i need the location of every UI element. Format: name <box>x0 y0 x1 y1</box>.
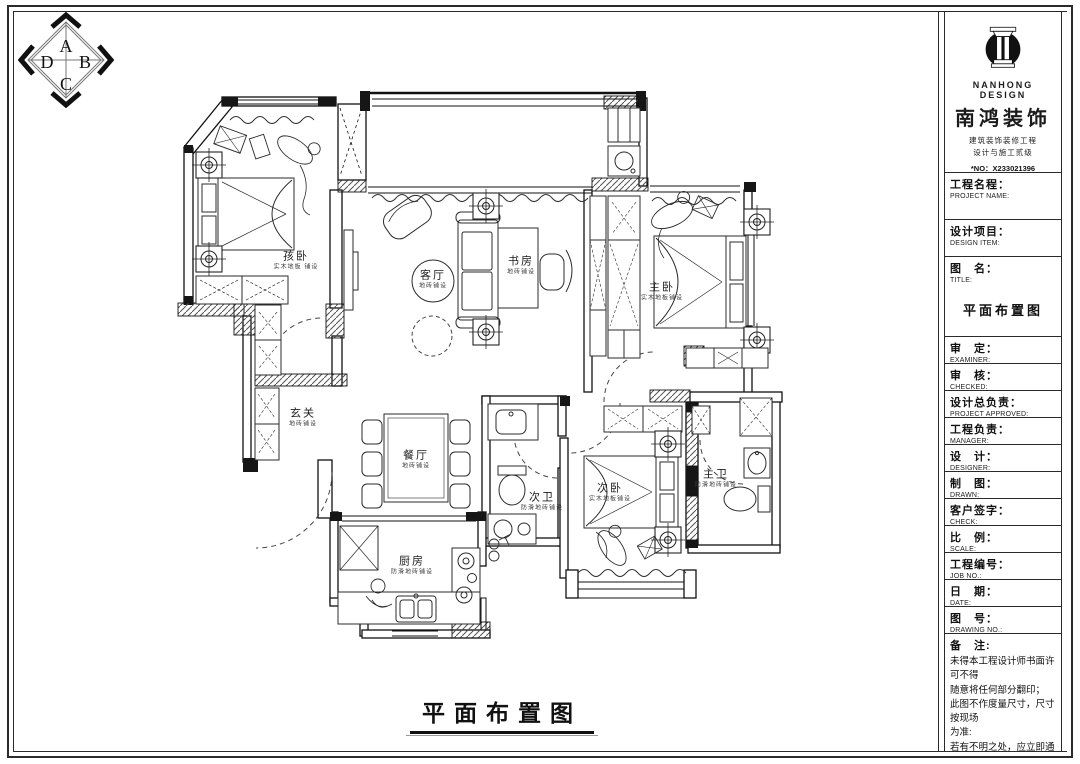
bedside-lamp <box>651 523 685 557</box>
field-drawing-no: 图 号： DRAWING NO.: <box>945 607 1061 634</box>
title-underline-thin <box>406 735 598 736</box>
field-project-approved: 设计总负责： PROJECT APPROVED: <box>945 391 1061 418</box>
field-project-name: 工程名程： PROJECT NAME: <box>945 173 1061 220</box>
field-client-signature: 客户签字： CHECK: <box>945 499 1061 526</box>
wardrobe-bedroom2 <box>604 406 682 432</box>
field-designer: 设 计： DESIGNER: <box>945 445 1061 472</box>
bed-child-bedroom <box>198 178 294 250</box>
field-title: 图 名： TITLE: 平面布置图 <box>945 257 1061 337</box>
remarks-text: 未得本工程设计师书面许可不得 随意将任何部分翻印； 此图不作度量尺寸，尺寸按现场… <box>950 655 1056 751</box>
field-checked: 审 核： CHECKED: <box>945 364 1061 391</box>
bedside-lamp <box>651 427 685 461</box>
field-date: 日 期： DATE: <box>945 580 1061 607</box>
drawing-title-text: 平面布置图 <box>402 694 602 728</box>
tv-console <box>344 230 358 310</box>
dresser-master <box>686 348 768 368</box>
drawing-title: 平面布置图 <box>402 694 602 736</box>
field-examiner: 审 定： EXAMINER: <box>945 337 1061 364</box>
field-manager: 工程负责： MANAGER: <box>945 418 1061 445</box>
cert-line-1: 建筑装饰装修工程 <box>950 135 1056 146</box>
compass-letter-d: D <box>41 52 54 72</box>
clutter-bedroom2 <box>592 521 662 570</box>
bookshelf-study <box>590 196 606 356</box>
title-underline-thick <box>410 731 594 734</box>
brand-name-cn: 南鸿装饰 <box>950 102 1056 131</box>
room-label-master-bedroom: 主卧实木地板铺设 <box>641 282 683 303</box>
orientation-compass: A B C D <box>18 12 114 108</box>
field-drawn: 制 图： DRAWN: <box>945 472 1061 499</box>
cert-line-2: 设计与施工贰级 <box>950 147 1056 158</box>
column-symbol <box>469 315 503 349</box>
room-label-dining: 餐厅地砖铺设 <box>402 450 430 471</box>
kitchen-sink <box>396 594 436 622</box>
vanity-bath2 <box>488 404 538 440</box>
sofa <box>456 212 500 328</box>
field-job-no: 工程编号： JOB NO.: <box>945 553 1061 580</box>
remarks-block: 备 注: 未得本工程设计师书面许可不得 随意将任何部分翻印； 此图不作度量尺寸，… <box>945 634 1061 751</box>
compass-letter-a: A <box>60 36 73 56</box>
room-label-kitchen: 厨房防滑地砖铺设 <box>391 556 433 577</box>
license-number: *NO：X233021396 <box>950 163 1056 173</box>
room-label-study: 书房地砖铺设 <box>507 256 535 277</box>
room-label-bedroom2: 次卧实木地板铺设 <box>589 483 631 504</box>
compass-letter-c: C <box>60 74 72 94</box>
chair-study <box>540 250 572 292</box>
room-label-master-bath: 主卫防滑地砖铺设 <box>695 469 737 490</box>
field-design-item: 设计项目： DESIGN ITEM: <box>945 220 1061 257</box>
armchair <box>379 191 436 243</box>
brand-name-en: NANHONG DESIGN <box>950 80 1056 100</box>
sink-master-bath <box>744 448 770 478</box>
windows <box>238 93 754 636</box>
title-block-panel: NANHONG DESIGN 南鸿装饰 建筑装饰装修工程 设计与施工贰级 *NO… <box>938 12 1067 751</box>
bedside-lamp <box>192 148 226 182</box>
wardrobe-master <box>608 196 640 358</box>
balcony-cabinet <box>608 108 640 142</box>
washing-machine <box>608 146 640 176</box>
shower-master-bath <box>692 398 772 436</box>
room-label-entry: 玄关地砖铺设 <box>289 408 317 429</box>
column-symbol <box>740 205 774 239</box>
room-label-child-bedroom: 孩卧实木地板 铺设 <box>274 251 319 272</box>
wardrobe-child-bedroom <box>196 276 288 304</box>
field-scale: 比 例： SCALE: <box>945 526 1061 553</box>
fridge <box>340 526 378 570</box>
shoe-cabinet-lower <box>255 388 279 460</box>
shoe-cabinet-upper <box>255 305 281 375</box>
toilet-master-bath <box>724 486 770 512</box>
company-logo-block: NANHONG DESIGN 南鸿装饰 建筑装饰装修工程 设计与施工贰级 *NO… <box>945 12 1061 173</box>
field-title-value: 平面布置图 <box>950 300 1056 319</box>
room-label-bath2: 次卫防滑地砖铺设 <box>521 492 563 513</box>
company-logo-icon <box>974 18 1032 76</box>
column-symbol <box>469 189 503 223</box>
bedside-lamp <box>192 242 226 276</box>
compass-letter-b: B <box>79 52 91 72</box>
room-label-living: 客厅地砖铺设 <box>419 270 447 291</box>
floor-plan-drawing <box>0 0 940 764</box>
drawing-sheet: A B C D <box>0 0 1080 764</box>
remarks-title: 备 注: <box>950 637 1056 653</box>
